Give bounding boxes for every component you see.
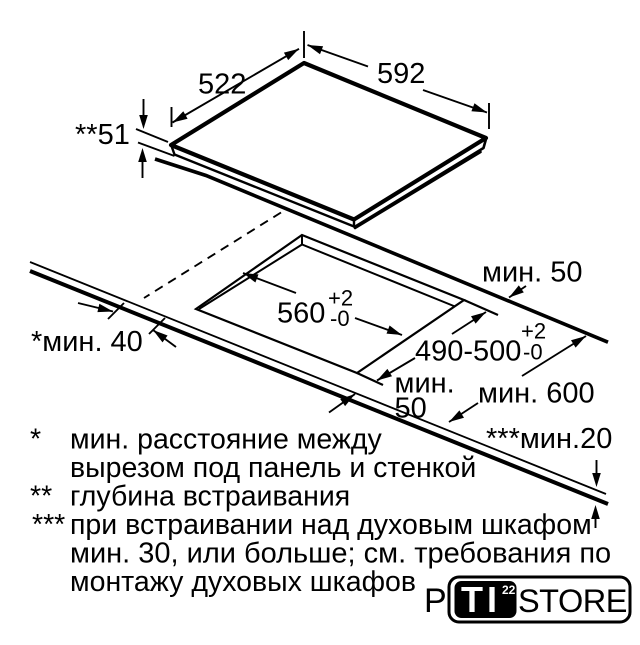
svg-text:***: *** [32, 509, 65, 541]
svg-text:при встраивании над духовым шк: при встраивании над духовым шкафом [70, 509, 592, 541]
svg-text:мин. 600: мин. 600 [478, 378, 595, 410]
svg-text:STORE: STORE [518, 583, 627, 619]
svg-text:глубина встраивания: глубина встраивания [70, 481, 350, 513]
svg-text:вырезом под панель и стенкой: вырезом под панель и стенкой [70, 452, 476, 484]
svg-text:**: ** [30, 481, 52, 513]
svg-text:*мин. 40: *мин. 40 [31, 326, 143, 358]
svg-text:монтажу духовых шкафов: монтажу духовых шкафов [70, 566, 416, 598]
svg-text:**51: **51 [75, 119, 130, 151]
svg-text:522: 522 [198, 69, 246, 101]
svg-text:Р: Р [424, 582, 447, 620]
svg-text:мин. 50: мин. 50 [482, 257, 583, 289]
svg-text:50: 50 [395, 393, 427, 425]
svg-text:22: 22 [502, 583, 516, 597]
svg-text:-0: -0 [523, 340, 543, 365]
svg-text:мин. 30, или больше; см. требо: мин. 30, или больше; см. требования по [70, 538, 611, 570]
svg-text:***мин.20: ***мин.20 [486, 423, 612, 455]
svg-text:560: 560 [277, 298, 325, 330]
svg-text:490-500: 490-500 [415, 336, 521, 368]
svg-text:*: * [30, 424, 41, 456]
svg-text:TI: TI [461, 579, 501, 620]
svg-text:-0: -0 [330, 306, 350, 331]
svg-text:592: 592 [377, 58, 425, 90]
svg-text:мин. расстояние между: мин. расстояние между [70, 424, 383, 456]
